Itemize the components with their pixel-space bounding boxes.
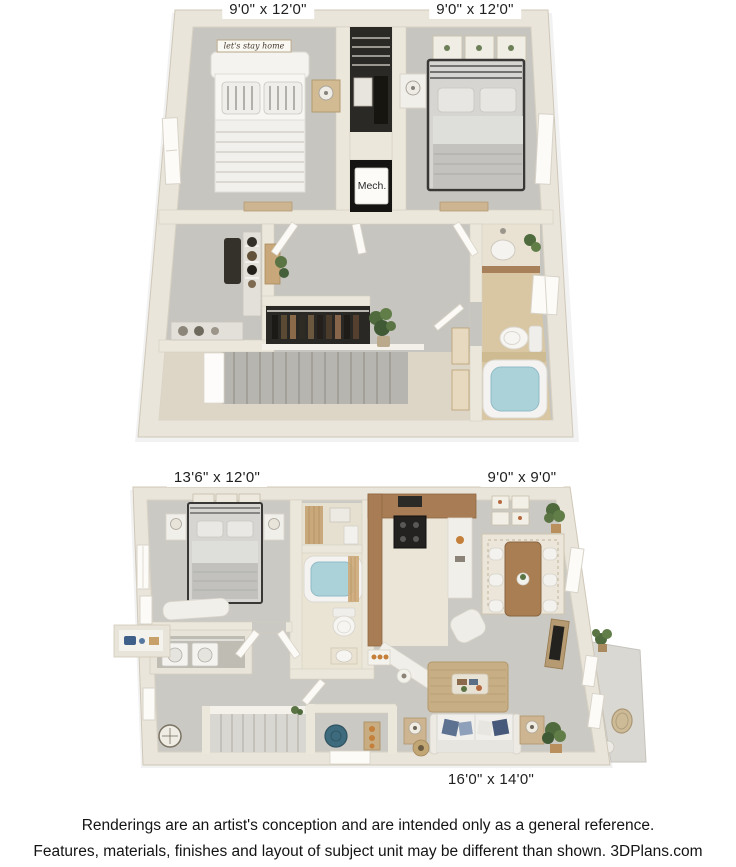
disclaimer-line-2: Features, materials, finishes and layout…: [0, 843, 736, 861]
bedroom-right-dresser: [440, 202, 488, 211]
disclaimer-line-1: Renderings are an artist's conception an…: [0, 817, 736, 835]
entry-doorway: [204, 353, 224, 403]
patio-plant-pot: [598, 644, 607, 652]
upper-floor-plan: [135, 10, 579, 442]
exterior-shelf-niche: [114, 625, 170, 657]
stairs-down: [204, 352, 408, 404]
floorplan-page: 9'0" x 12'0" 9'0" x 12'0" let's stay hom…: [0, 0, 736, 867]
range-hood: [398, 496, 422, 507]
powder-sink: [336, 650, 352, 662]
stove: [394, 516, 426, 548]
sofa: [430, 714, 521, 754]
dim-label-main-bedroom: 13'6" x 12'0": [167, 468, 267, 487]
bedroom-left-bed: [211, 52, 309, 192]
dim-label-upper-bedroom-left: 9'0" x 12'0": [222, 0, 314, 19]
coffee-table: [452, 674, 488, 694]
bedroom-wall-sign: let's stay home: [217, 40, 292, 53]
dim-label-living: 16'0" x 14'0": [441, 770, 541, 789]
vanity-edge: [482, 266, 540, 273]
main-floor-plan: [114, 487, 646, 768]
bathroom-sink: [491, 240, 515, 260]
floorplan-graphic: [0, 0, 736, 867]
mech-closet-label: Mech.: [358, 180, 387, 192]
main-toilet: [333, 608, 355, 636]
bedroom-right-bed: [428, 60, 524, 190]
dim-label-upper-bedroom-right: 9'0" x 12'0": [429, 0, 521, 19]
bedroom-right-nightstand: [400, 74, 426, 108]
dim-label-dining: 9'0" x 9'0": [481, 468, 564, 487]
leaning-art-2: [452, 370, 469, 410]
shower-curtain: [348, 556, 359, 602]
leaning-art: [452, 328, 469, 364]
hall-linen-closet: [350, 27, 392, 132]
dining-area: [482, 496, 565, 616]
blue-ottoman: [325, 725, 347, 747]
hall-closet-clothes: [266, 306, 370, 344]
end-table-right: [520, 716, 544, 744]
bathtub: [483, 360, 547, 418]
front-door: [330, 751, 370, 764]
bedroom-right-frames: [433, 36, 526, 60]
stair-rail: [262, 344, 424, 350]
bedroom-left-nightstand: [312, 80, 340, 112]
kitchen-pantry-run: [368, 494, 382, 646]
bedroom-left-dresser: [244, 202, 292, 211]
